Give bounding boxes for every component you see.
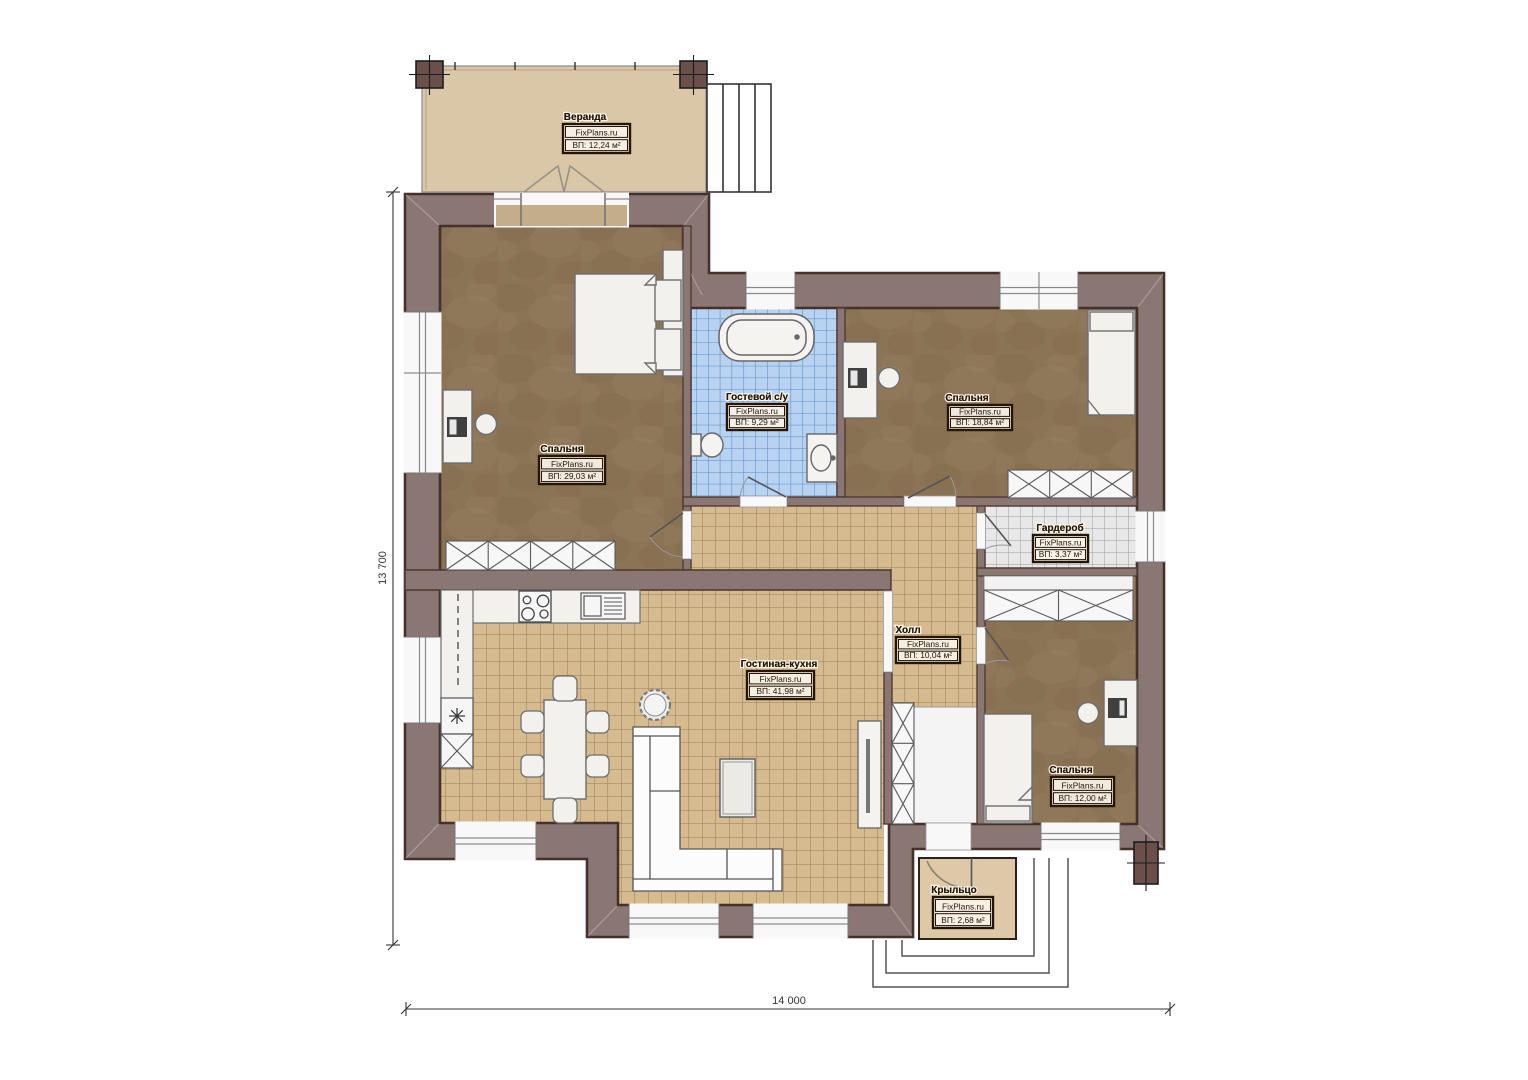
svg-text:ВП: 12,00 м²: ВП: 12,00 м² bbox=[1058, 793, 1106, 803]
svg-text:14 000: 14 000 bbox=[772, 995, 806, 1007]
svg-text:Холл: Холл bbox=[895, 625, 920, 636]
svg-text:Спальня: Спальня bbox=[945, 393, 988, 404]
svg-text:FixPlans.ru: FixPlans.ru bbox=[1062, 780, 1104, 790]
svg-text:Гостевой с/у: Гостевой с/у bbox=[726, 392, 789, 403]
svg-text:FixPlans.ru: FixPlans.ru bbox=[736, 406, 778, 416]
svg-text:Гардероб: Гардероб bbox=[1036, 522, 1083, 534]
svg-text:ВП: 29,03 м²: ВП: 29,03 м² bbox=[548, 471, 596, 481]
svg-text:FixPlans.ru: FixPlans.ru bbox=[576, 127, 618, 137]
svg-text:ВП: 41,98 м²: ВП: 41,98 м² bbox=[756, 686, 804, 696]
svg-text:ВП: 9,29 м²: ВП: 9,29 м² bbox=[735, 417, 779, 427]
svg-text:FixPlans.ru: FixPlans.ru bbox=[1040, 537, 1082, 547]
svg-text:ВП: 12,24 м²: ВП: 12,24 м² bbox=[572, 140, 620, 150]
svg-text:Спальня: Спальня bbox=[540, 444, 583, 455]
svg-text:ВП: 18,84 м²: ВП: 18,84 м² bbox=[956, 417, 1004, 427]
svg-text:FixPlans.ru: FixPlans.ru bbox=[551, 459, 593, 469]
svg-text:FixPlans.ru: FixPlans.ru bbox=[959, 406, 1001, 416]
svg-text:FixPlans.ru: FixPlans.ru bbox=[942, 901, 984, 911]
svg-text:ВП: 3,37 м²: ВП: 3,37 м² bbox=[1039, 549, 1083, 559]
svg-text:Крыльцо: Крыльцо bbox=[931, 885, 977, 896]
svg-text:ВП: 2,68 м²: ВП: 2,68 м² bbox=[941, 915, 985, 925]
svg-text:ВП: 10,04 м²: ВП: 10,04 м² bbox=[904, 650, 952, 660]
svg-text:Веранда: Веранда bbox=[564, 112, 607, 123]
svg-text:FixPlans.ru: FixPlans.ru bbox=[760, 674, 802, 684]
svg-text:Гостиная-кухня: Гостиная-кухня bbox=[741, 659, 818, 670]
svg-text:Спальня: Спальня bbox=[1049, 765, 1092, 776]
svg-text:13 700: 13 700 bbox=[377, 551, 389, 585]
svg-text:FixPlans.ru: FixPlans.ru bbox=[907, 639, 949, 649]
